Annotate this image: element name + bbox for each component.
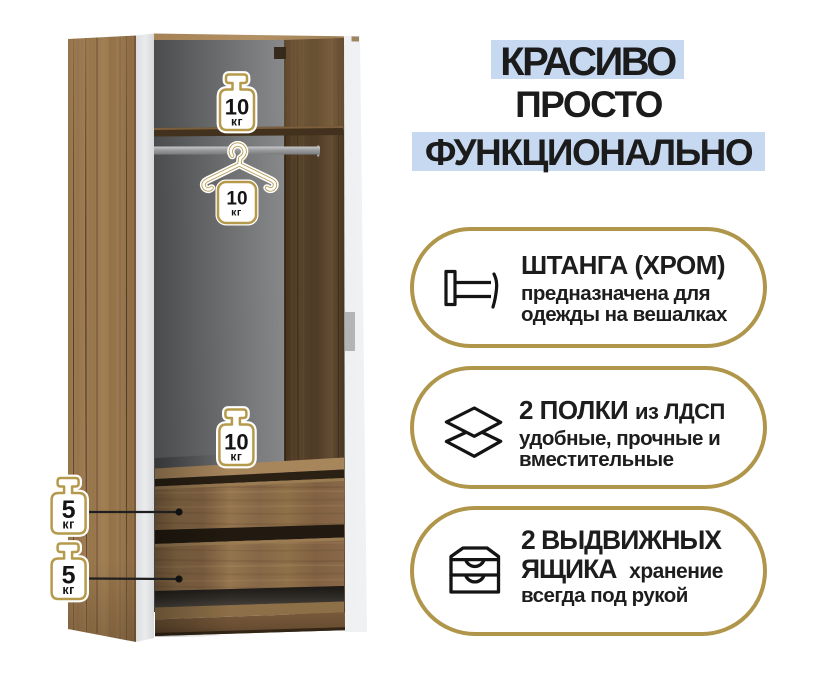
svg-text:кг: кг [231,115,243,129]
svg-text:кг: кг [62,518,74,532]
svg-text:кг: кг [231,207,242,219]
svg-text:кг: кг [230,450,242,464]
svg-text:кг: кг [62,583,74,597]
